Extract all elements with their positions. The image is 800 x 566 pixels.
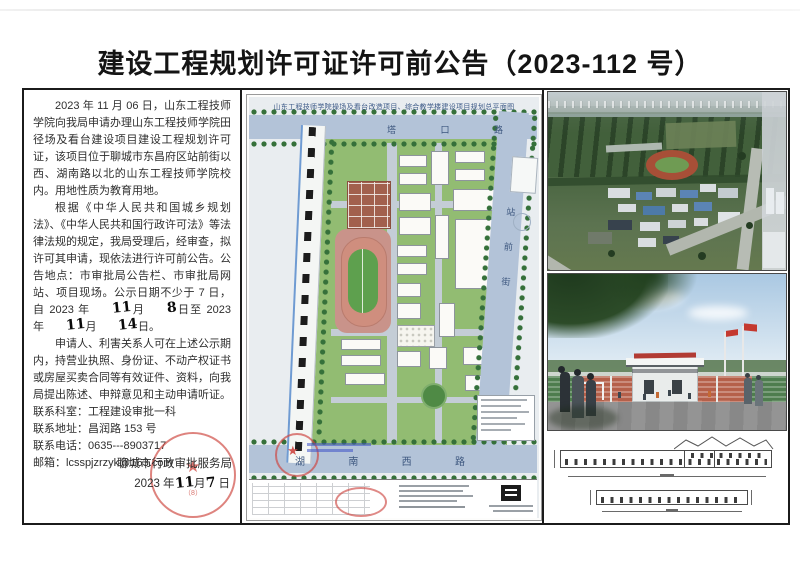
elevation-1-windows [565, 459, 767, 465]
notice-paragraph-1: 2023 年 11 月 06 日，山东工程技师学院向我局申请办理山东工程技师学院… [33, 98, 231, 200]
column-divider-right [542, 90, 544, 523]
building [439, 303, 455, 337]
signature-month-suffix: 月 [194, 478, 206, 490]
elevation-1-upper-windows [691, 453, 767, 458]
aerial-campus-photo [548, 92, 786, 270]
building [397, 351, 421, 367]
adjacent-parcel [510, 156, 538, 194]
building [397, 245, 427, 257]
road-label-top: 塔 口 路 [387, 123, 503, 136]
site-plan-sheet: ★ 山东工程技师学院操场及看台改造项目、综合教学楼建设项目规划总平面图 塔 口 … [246, 94, 542, 521]
notice-paragraph-3: 申请人、利害关系人可在上述公示期内，持营业执照、身份证、不动产权证书或房屋买卖合… [33, 336, 231, 404]
stadium-rendering-photo [548, 274, 786, 430]
handwritten-sign-month: 11 [174, 477, 194, 489]
road-bottom-char: 西 [402, 453, 412, 468]
campus-building [656, 188, 676, 197]
player [688, 393, 691, 399]
handwritten-month-2: 11 [44, 319, 86, 333]
campus-building [718, 188, 738, 198]
building [397, 303, 421, 319]
title-block-oval-stamp [335, 487, 387, 517]
track-centerline [362, 249, 363, 313]
column-divider-left [240, 90, 242, 523]
title-block-line [399, 495, 473, 497]
building [399, 217, 431, 235]
scan-artifact [0, 9, 800, 11]
tree [608, 250, 615, 257]
elevation-1-side-dimension [554, 450, 555, 468]
blue-annotation [307, 443, 371, 446]
tree [698, 252, 706, 260]
track-infield [348, 249, 378, 313]
signature-date: 2023 年11月7 日 [134, 476, 230, 493]
tower-building [766, 188, 774, 214]
elevation-2-side-dimension [751, 490, 752, 505]
handwritten-month-1: 11 [90, 302, 132, 316]
page-title: 建设工程规划许可证许可前公告（2023-112 号） [0, 42, 800, 81]
sports-courts [347, 181, 391, 229]
content-frame: 2023 年 11 月 06 日，山东工程技师学院向我局申请办理山东工程技师学院… [22, 88, 790, 525]
handwritten-sign-day: 7 [205, 478, 216, 489]
notice-p1-text: 2023 年 11 月 06 日，山东工程技师学院向我局申请办理山东工程技师学院… [33, 100, 231, 197]
building [341, 339, 381, 350]
building [399, 173, 427, 185]
haze [548, 92, 786, 106]
stand-pillar [610, 376, 612, 402]
title-block-line [399, 500, 457, 502]
player [708, 391, 711, 397]
stadium-deco-host [548, 274, 786, 430]
building [341, 355, 381, 366]
road-bottom-char: 南 [348, 453, 358, 468]
spectator-head [574, 369, 581, 376]
title-block-line [493, 510, 533, 512]
pavilion-door [672, 380, 682, 394]
building [397, 263, 427, 275]
building [399, 193, 431, 211]
campus-building [672, 204, 688, 212]
elevation-drawing-2 [596, 490, 748, 505]
title-block-line [399, 506, 465, 508]
city-block [763, 232, 785, 268]
tree-shadow [548, 406, 618, 430]
notice-text-column: 2023 年 11 月 06 日，山东工程技师学院向我局申请办理山东工程技师学院… [24, 90, 240, 523]
road-label-bottom: 湖 南 西 路 [295, 453, 465, 468]
legend-line [481, 429, 511, 431]
spectator [744, 378, 752, 404]
notice-p2-text: 根据《中华人民共和国城乡规划法》、《中华人民共和国行政许可法》等法律法规的规定，… [33, 202, 231, 316]
signature-day-suffix: 日 [219, 478, 231, 490]
campus-building [700, 184, 716, 192]
campus-building [640, 222, 660, 231]
scanned-notice-page: 建设工程规划许可证许可前公告（2023-112 号） 2023 年 11 月 0… [0, 0, 800, 566]
notice-p2-text: 月 [132, 304, 145, 316]
player [668, 390, 671, 396]
campus-building [643, 206, 665, 215]
road-bottom-char: 湖 [295, 453, 305, 468]
round-garden [421, 383, 447, 409]
elevation-drawing-1 [560, 450, 772, 468]
campus-building [694, 218, 708, 226]
contact-department: 联系科室：工程建设审批一科 [33, 404, 231, 421]
campus-building [636, 192, 652, 200]
campus-building [668, 220, 686, 228]
notice-p2-text: 日。 [138, 321, 160, 333]
campus-building [694, 202, 712, 211]
elevation-1-canopy [674, 435, 774, 450]
campus-building [638, 238, 656, 247]
spectator-head [587, 373, 594, 380]
red-flag [744, 323, 757, 331]
signature-year: 2023 年 [134, 478, 174, 490]
player [656, 392, 659, 398]
handwritten-day-1: 8 [145, 302, 178, 315]
player [618, 392, 621, 398]
notice-paragraph-2: 根据《中华人民共和国城乡规划法》、《中华人民共和国行政许可法》等法律法规的规定，… [33, 200, 231, 336]
tower-building [776, 192, 784, 214]
spectator-head [756, 375, 761, 380]
blue-annotation [307, 449, 353, 452]
site-plan-drawing: ★ 山东工程技师学院操场及看台改造项目、综合教学楼建设项目规划总平面图 塔 口 … [249, 97, 539, 518]
building [431, 151, 449, 185]
road-top-char: 路 [494, 123, 503, 136]
flag-pole [724, 332, 726, 376]
elevation-2-side-dimension [590, 490, 591, 505]
campus-building [608, 188, 630, 198]
title-block-line [399, 490, 463, 492]
building [399, 155, 427, 167]
logo-bar [505, 489, 517, 491]
light-field-patch [666, 121, 737, 149]
legend-line [481, 405, 521, 407]
road-top-char: 塔 [387, 123, 396, 136]
pavilion-door [644, 380, 654, 394]
canopy-roof [626, 358, 704, 367]
elevation-1-joint [714, 451, 715, 467]
legend-line [481, 423, 525, 425]
paved-plaza [397, 325, 435, 347]
spectator-head [745, 373, 750, 378]
campus-building [608, 220, 632, 230]
legend-line [481, 411, 529, 413]
legend-line [481, 417, 517, 419]
signature-organization: 聊城市行政审批服务局 [117, 456, 232, 473]
tree [746, 222, 753, 229]
canopy-shadow [632, 369, 698, 373]
title-block-line [489, 505, 533, 507]
building [345, 373, 385, 385]
design-firm-logo [501, 485, 521, 501]
site-plan-title: 山东工程技师学院操场及看台改造项目、综合教学楼建设项目规划总平面图 [249, 102, 539, 112]
legend-line [481, 399, 527, 401]
logo-bar [505, 494, 517, 496]
road-bottom-char: 路 [455, 453, 465, 468]
elevation-1-joint [684, 451, 685, 467]
spectator-head [558, 366, 565, 373]
elevation-1-dimension-label [660, 474, 674, 477]
notice-p3-text: 申请人、利害关系人可在上述公示期内，持营业执照、身份证、不动产权证书或房屋买卖合… [33, 338, 231, 401]
elevation-2-dimension-label [666, 509, 678, 512]
building [455, 151, 485, 163]
foreground-tree [603, 274, 698, 312]
building [435, 215, 449, 259]
player [643, 394, 646, 400]
title-block-line [399, 485, 469, 487]
campus-track-infield [655, 157, 689, 173]
spectator [755, 380, 763, 406]
handwritten-day-2: 14 [96, 319, 138, 333]
road-top-char: 口 [440, 123, 449, 136]
building [455, 169, 485, 181]
stand-pillar [716, 376, 718, 402]
elevation-2-windows [601, 497, 743, 503]
campus-building [588, 232, 612, 244]
campus-building [680, 190, 698, 198]
building [397, 283, 421, 297]
aerial-deco-host [548, 92, 786, 270]
campus-building [618, 204, 636, 212]
flag-pole [742, 326, 744, 376]
tree [738, 152, 746, 160]
building [429, 347, 447, 369]
elevation-drawings [548, 434, 786, 519]
